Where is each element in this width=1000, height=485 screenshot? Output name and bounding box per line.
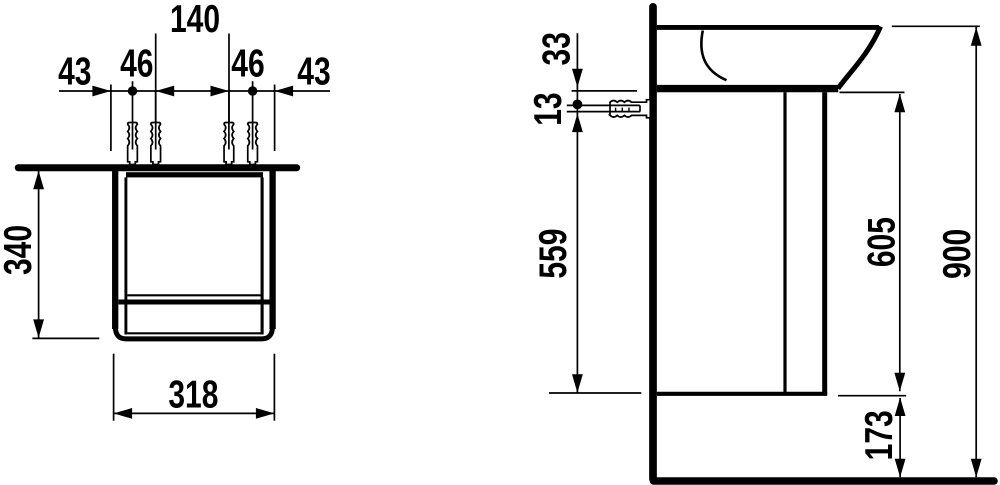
svg-text:900: 900 [935,229,979,279]
svg-text:340: 340 [0,225,40,275]
svg-text:46: 46 [120,42,153,86]
svg-text:13: 13 [526,92,570,125]
svg-text:33: 33 [535,32,579,65]
svg-text:559: 559 [531,229,575,279]
svg-text:140: 140 [170,0,220,41]
svg-text:318: 318 [168,373,218,417]
svg-text:173: 173 [857,410,901,460]
svg-text:43: 43 [297,50,330,94]
svg-text:605: 605 [860,217,904,267]
svg-text:43: 43 [58,50,91,94]
svg-text:46: 46 [231,42,264,86]
